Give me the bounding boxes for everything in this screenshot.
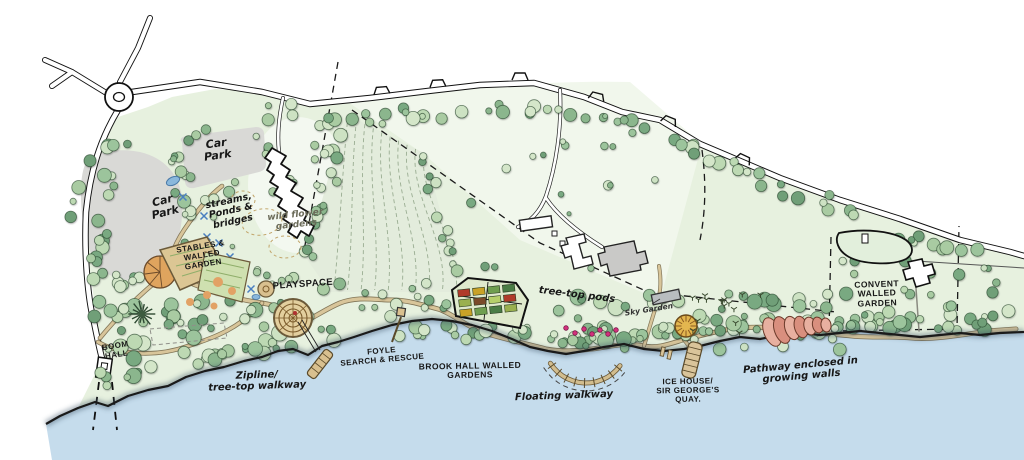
roundabout-island [114,93,125,102]
convent-gate-building [862,234,868,243]
map-canvas [0,0,1024,460]
northwest-road [45,60,108,94]
masterplan-map: Car ParkCar Parkstreams, Ponds & bridges… [0,0,1024,460]
rescue-station [396,307,405,316]
outbuilding [552,231,557,236]
north-road [120,18,150,82]
pond [252,295,260,300]
